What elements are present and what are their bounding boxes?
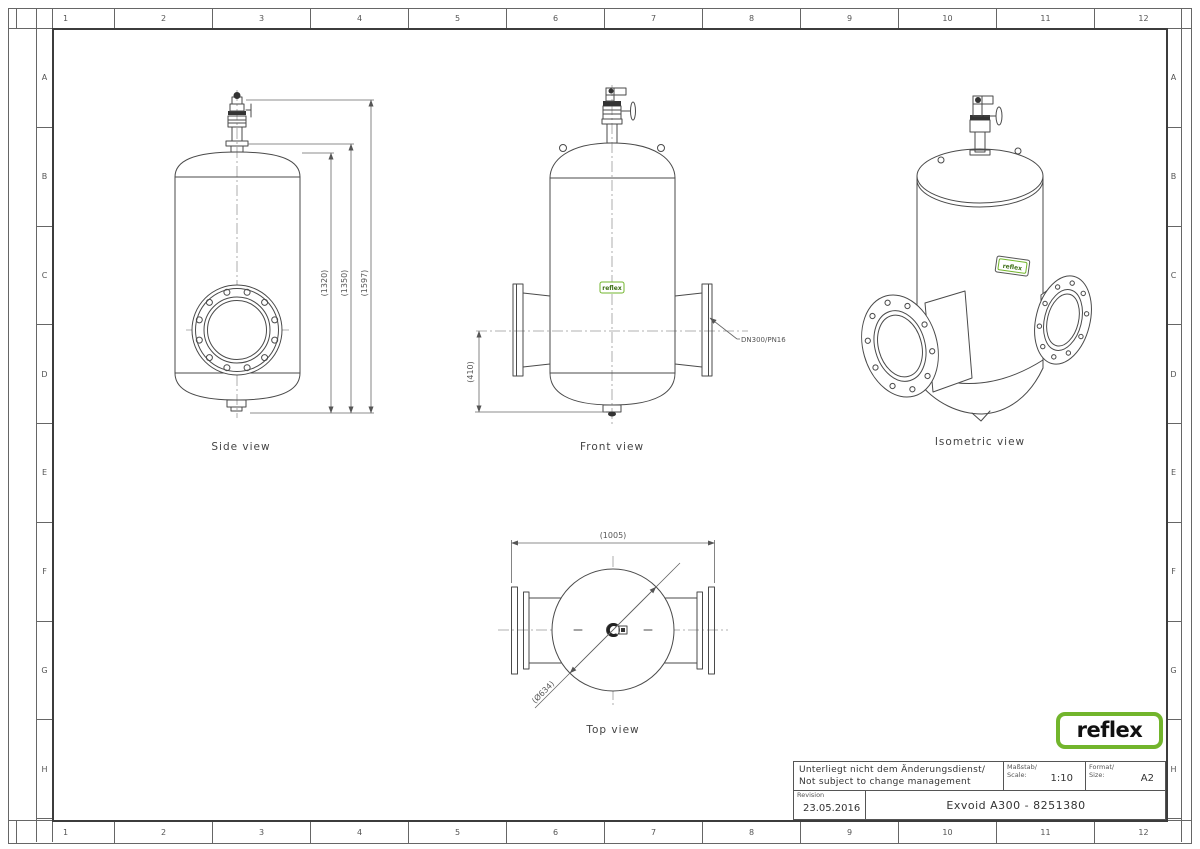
technical-drawing: (1320) (1350) (1597) Side view <box>0 0 1200 849</box>
revision-cell: Revision 23.05.2016 <box>794 791 866 820</box>
left-nozzle <box>513 284 550 376</box>
change-note-de: Unterliegt nicht dem Änderungsdienst/ <box>799 764 998 776</box>
dim-label-1320: (1320) <box>320 270 329 297</box>
drawing-sheet: 123456789101112 123456789101112 ABCDEFGH… <box>0 0 1200 849</box>
nozzle-spec-label: DN300/PN16 <box>741 336 786 344</box>
format-cell: Format/ Size: A2 <box>1086 762 1166 791</box>
dim-label-410: (410) <box>466 361 475 383</box>
reflex-logo-text: reflex <box>1077 720 1143 741</box>
front-view-drawing: reflex (410) DN300/PN16 Front view <box>466 85 786 453</box>
scale-label-en: Scale: <box>1007 772 1085 780</box>
front-view-label: Front view <box>580 441 644 453</box>
scale-value: 1:10 <box>1051 773 1073 784</box>
right-nozzle <box>675 284 712 376</box>
lifting-lug-icon <box>1015 148 1021 154</box>
front-view-dimensions: (410) DN300/PN16 <box>466 318 786 412</box>
dim-label-1350: (1350) <box>340 270 349 297</box>
svg-text:reflex: reflex <box>602 285 622 292</box>
dim-label-1597: (1597) <box>360 270 369 297</box>
change-note-en: Not subject to change management <box>799 776 998 788</box>
drawing-title: Exvoid A300 - 8251380 <box>866 791 1166 820</box>
reflex-logo: reflex <box>1056 712 1163 749</box>
scale-cell: Maßstab/ Scale: 1:10 <box>1004 762 1086 791</box>
title-block: Unterliegt nicht dem Änderungsdienst/ No… <box>793 761 1166 820</box>
air-vent-valve-front <box>602 88 636 143</box>
air-vent-valve-iso <box>970 96 1002 155</box>
isometric-view-label: Isometric view <box>935 436 1025 448</box>
revision-label: Revision <box>797 792 862 800</box>
side-view-drawing: (1320) (1350) (1597) Side view <box>175 90 374 453</box>
reflex-logo-inner: reflex <box>1060 716 1159 745</box>
top-view-drawing: (1005) (Ø634) Top view <box>498 531 728 736</box>
change-note: Unterliegt nicht dem Änderungsdienst/ No… <box>794 762 1004 791</box>
reflex-sticker-front: reflex <box>600 282 624 293</box>
isometric-view-drawing: reflex <box>850 96 1100 448</box>
side-view-label: Side view <box>211 441 270 453</box>
lifting-lug-icon <box>658 145 665 152</box>
air-vent-valve-side <box>226 92 251 152</box>
revision-date: 23.05.2016 <box>797 800 862 814</box>
reflex-sticker-iso: reflex <box>995 256 1030 276</box>
inspection-flange <box>192 285 282 375</box>
iso-right-flange <box>1026 270 1100 370</box>
side-view-dimensions: (1320) (1350) (1597) <box>246 100 374 413</box>
dim-label-diameter: (Ø634) <box>530 679 557 706</box>
format-label-en: Size: <box>1089 772 1166 780</box>
top-view-label: Top view <box>585 724 639 736</box>
dim-label-1005: (1005) <box>600 531 627 540</box>
format-value: A2 <box>1141 773 1154 784</box>
lifting-lug-icon <box>560 145 567 152</box>
